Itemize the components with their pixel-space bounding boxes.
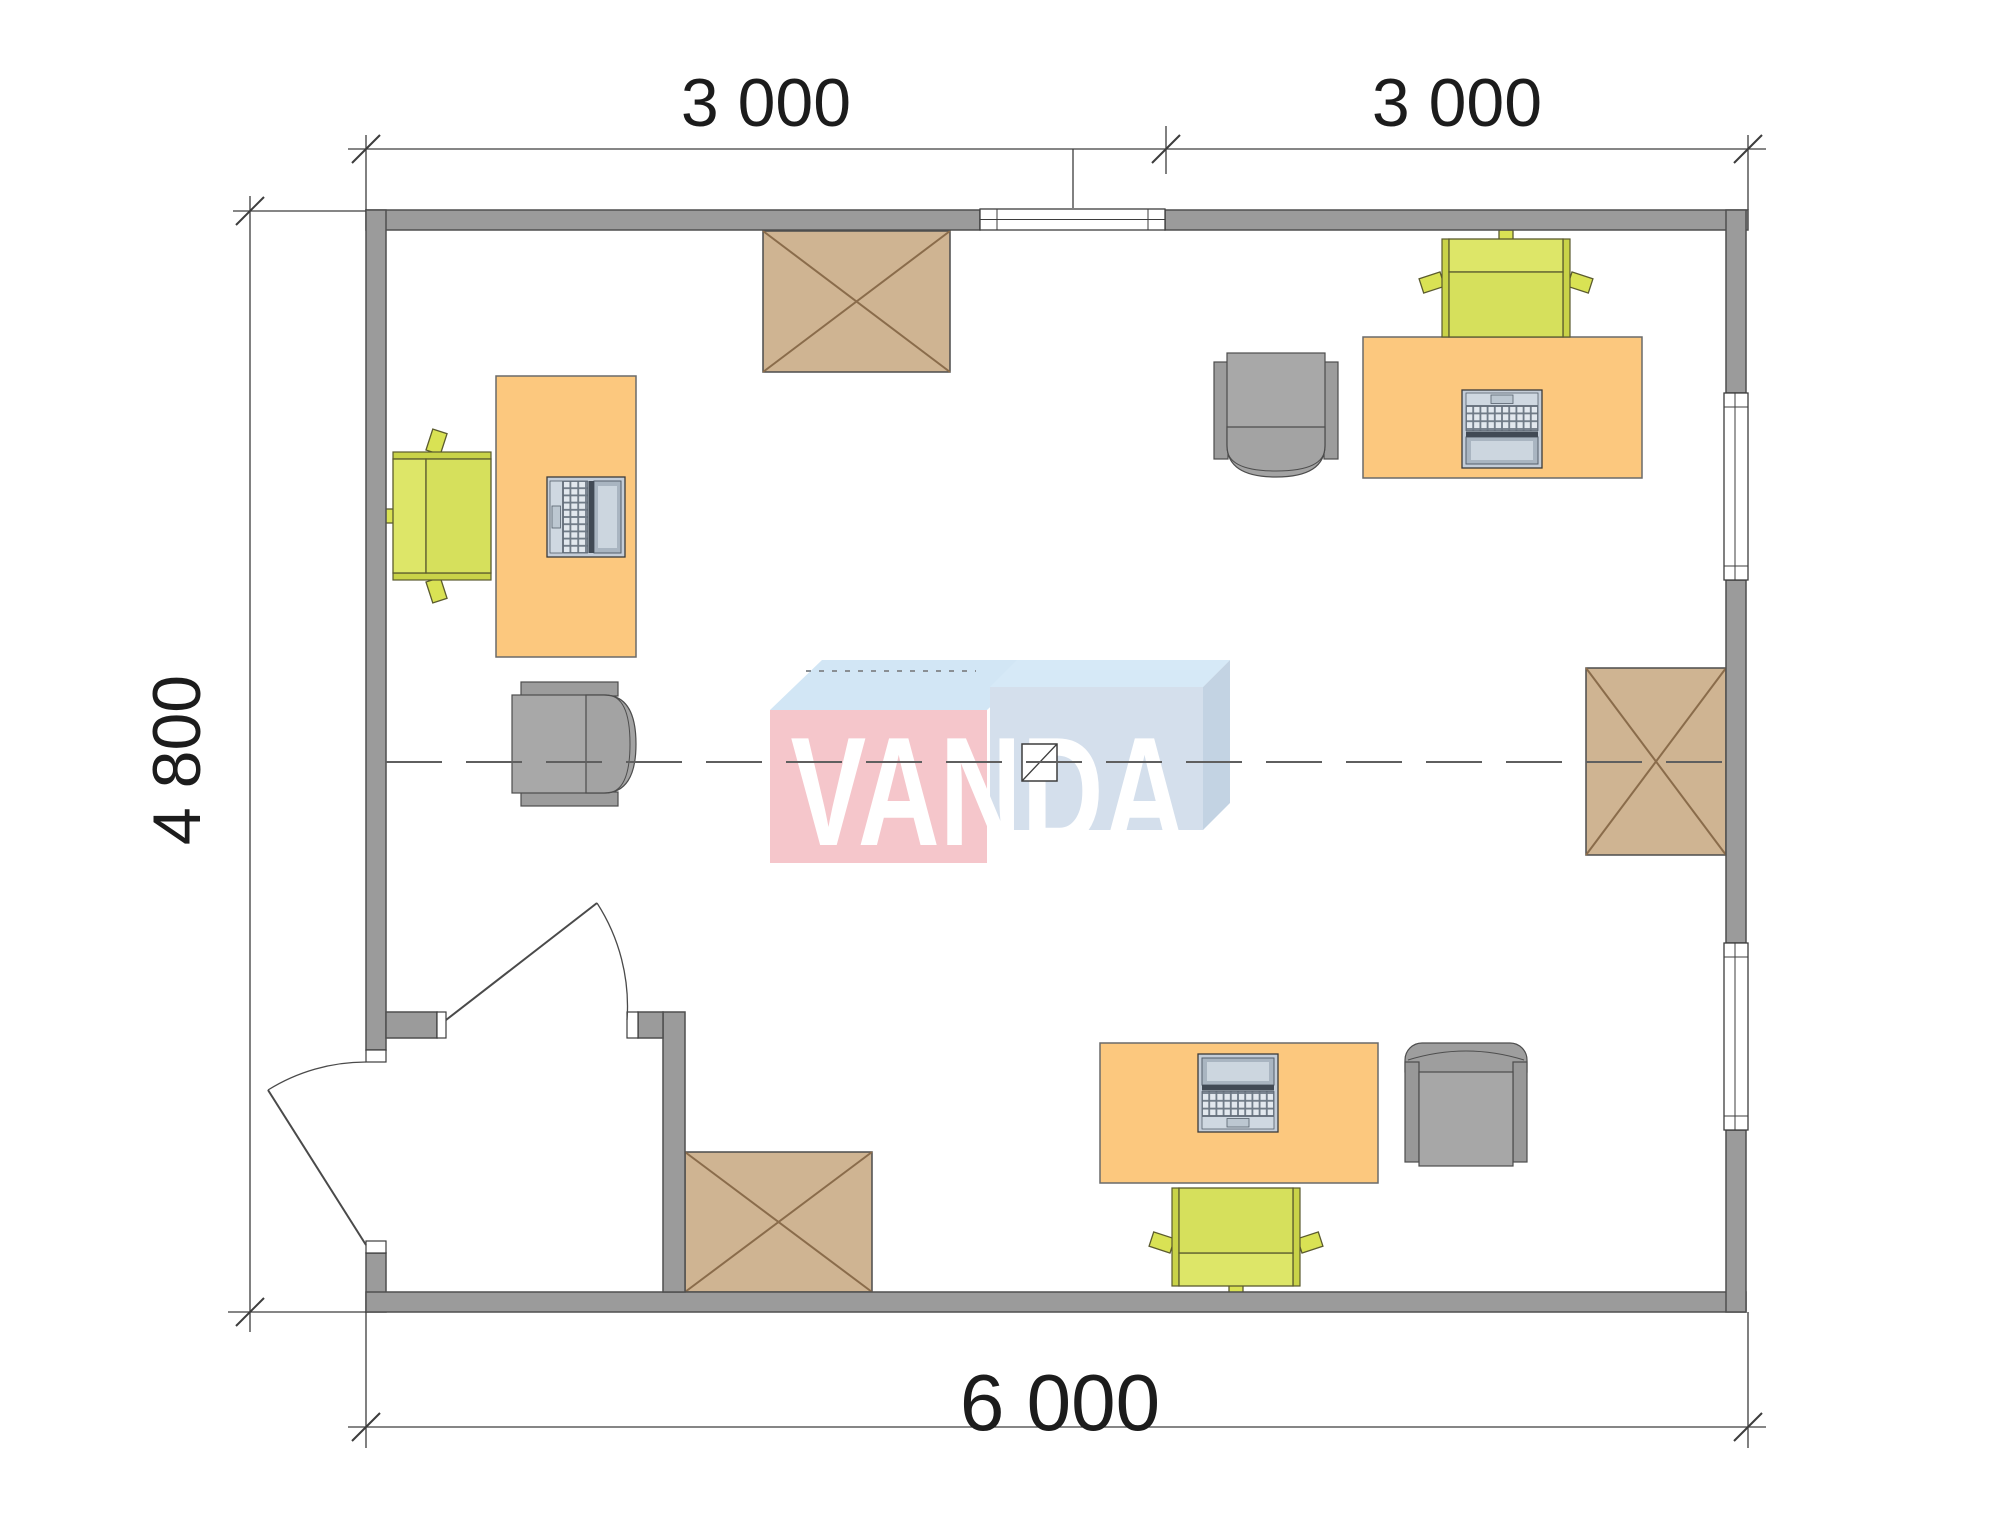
interior-door-swing-arc: [597, 903, 627, 1020]
watermark-right-box-side-face: [1203, 660, 1230, 830]
jamb: [627, 1012, 638, 1038]
jamb: [437, 1012, 446, 1038]
laptop-icon: [1198, 1054, 1278, 1132]
wall-right-lower: [1726, 1130, 1746, 1312]
dim-label-top-right: 3 000: [1372, 65, 1542, 141]
task-chair-icon: [1149, 1188, 1323, 1295]
wall-top-right-segment: [1165, 210, 1748, 230]
wall-bottom: [366, 1292, 1746, 1312]
interior-door: [446, 903, 627, 1020]
floor-plan: VANDA: [0, 0, 2000, 1520]
wall-vestibule-stub-left: [386, 1012, 437, 1038]
task-chair-icon: [1419, 230, 1593, 337]
doors: [268, 903, 627, 1245]
door-jambs: [366, 1012, 638, 1253]
watermark-right-box-top-face: [990, 660, 1230, 687]
dim-label-bottom: 6 000: [960, 1358, 1160, 1447]
visitor-chair-icon: [512, 682, 636, 806]
jamb: [366, 1050, 386, 1062]
entry-door: [268, 1062, 366, 1245]
vanda-watermark: VANDA: [770, 660, 1230, 878]
jamb: [366, 1241, 386, 1253]
wall-vestibule-stub-right: [638, 1012, 663, 1038]
task-chair-icon: [384, 429, 491, 603]
wall-right-upper: [1726, 210, 1746, 393]
dim-label-top-left: 3 000: [681, 65, 851, 141]
laptop-icon: [547, 477, 625, 557]
entry-door-leaf: [268, 1090, 366, 1245]
armchair-icon: [1405, 1043, 1527, 1166]
window-right-upper: [1724, 393, 1748, 580]
interior-door-leaf: [446, 903, 597, 1020]
entry-door-swing-arc: [268, 1062, 366, 1090]
floor-plan-drawing: VANDA: [0, 0, 2000, 1520]
window-right-lower: [1724, 943, 1748, 1130]
crossed-box-bottom: [685, 1152, 872, 1292]
laptop-icon: [1462, 390, 1542, 468]
wall-vestibule-partition: [663, 1012, 685, 1292]
watermark-text: VANDA: [791, 705, 1186, 878]
crossed-box-top: [763, 231, 950, 372]
dim-label-left: 4 800: [139, 675, 215, 845]
window-top: [980, 209, 1165, 230]
wall-top-left-segment: [366, 210, 980, 230]
visitor-chair-icon: [1214, 353, 1338, 477]
wall-right-middle: [1726, 580, 1746, 943]
wall-left-upper: [366, 210, 386, 1050]
